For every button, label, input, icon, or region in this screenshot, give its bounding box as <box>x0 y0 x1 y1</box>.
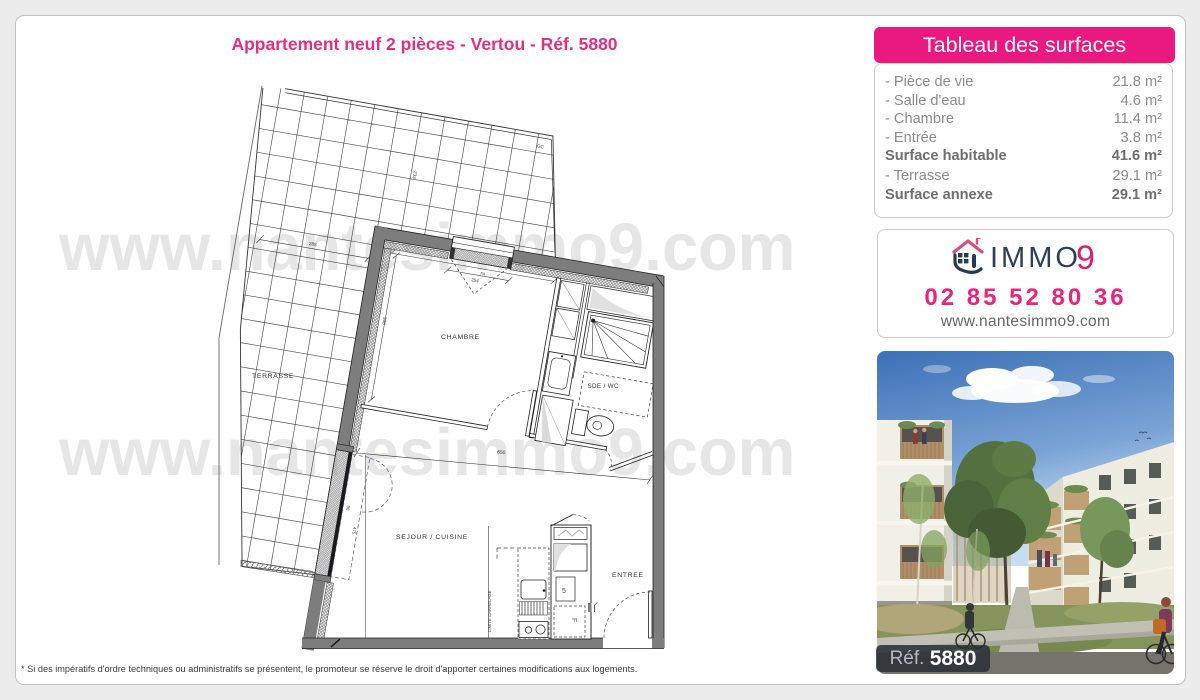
svg-text:650: 650 <box>497 450 506 457</box>
svg-text:CHAMBRE: CHAMBRE <box>441 334 480 341</box>
svg-text:285: 285 <box>309 241 318 247</box>
svg-text:F: F <box>570 618 577 622</box>
svg-text:233: 233 <box>412 171 418 180</box>
svg-text:SEJOUR / CUISINE: SEJOUR / CUISINE <box>396 534 468 541</box>
svg-text:9: 9 <box>1076 239 1095 277</box>
svg-text:TERRASSE: TERRASSE <box>252 373 294 380</box>
svg-text:254: 254 <box>471 277 480 283</box>
svg-text:5: 5 <box>562 588 566 595</box>
svg-text:LIMITE CARRELAGE: LIMITE CARRELAGE <box>487 590 492 632</box>
svg-text:ENTREE: ENTREE <box>612 572 644 579</box>
svg-text:90: 90 <box>345 505 351 511</box>
svg-text:308: 308 <box>381 317 387 326</box>
svg-text:SDE / WC: SDE / WC <box>588 383 620 390</box>
svg-text:475: 475 <box>351 527 357 536</box>
svg-text:IMMO: IMMO <box>990 242 1081 274</box>
svg-text:GC: GC <box>537 143 545 149</box>
